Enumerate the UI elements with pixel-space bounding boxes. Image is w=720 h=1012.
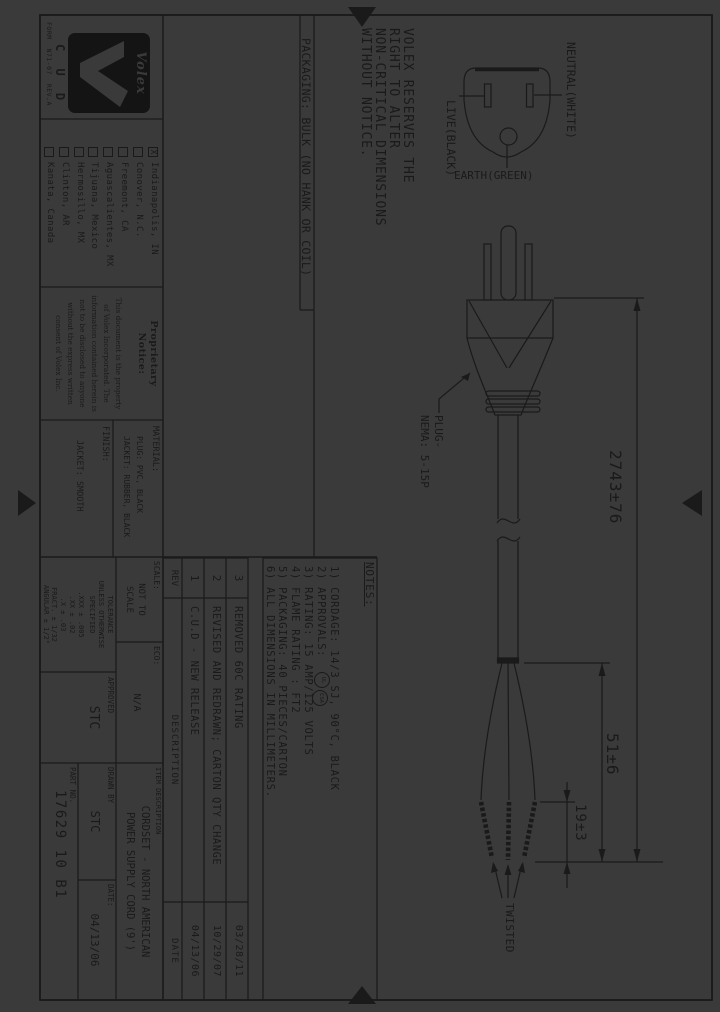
location-row: Freemont, CA xyxy=(115,121,130,286)
packaging-note: PACKAGING: BULK (NO HANK OR COIL) xyxy=(300,38,312,276)
tolerance-line2: UNLESS OTHERWISE xyxy=(96,557,104,672)
proprietary-line: consent of Volex Inc. xyxy=(54,290,62,417)
rev-table-rev-header: REV xyxy=(168,558,178,598)
location-label: Freemont, CA xyxy=(119,162,129,232)
proprietary-line: This document is the property xyxy=(114,290,122,417)
drawn-by-value: STC xyxy=(88,763,101,880)
tolerance-line3: SPECIFIED xyxy=(87,557,95,672)
earth-label: EARTH(GREEN) xyxy=(454,170,549,182)
location-row: Hermosillo, MX xyxy=(71,121,86,286)
location-row: Conover, N.C. xyxy=(130,121,145,286)
location-row: Aguascalientes, MX xyxy=(100,121,115,286)
approved-label: APPROVED xyxy=(106,677,114,713)
notes-title: NOTES: xyxy=(363,562,375,607)
note-item-2: 2) APPROVALS: xyxy=(315,566,326,657)
proprietary-line: without the express written xyxy=(66,290,74,417)
location-label: Conover, N.C. xyxy=(134,162,144,238)
logo-cud-text: C U D xyxy=(53,44,66,105)
proprietary-line: not to be disclosed to anyone xyxy=(78,290,86,417)
volex-logo-v-icon xyxy=(72,33,132,113)
form-number: FORM N71-07 REV.A xyxy=(45,22,52,106)
finish-value: JACKET: SMOOTH xyxy=(74,440,83,512)
date-value: 04/13/06 xyxy=(88,880,100,1000)
rev-description: C.U.D - NEW RELEASE xyxy=(188,606,199,736)
checkbox-icon xyxy=(44,147,54,157)
material-jacket-value: JACKET: RUBBER, BLACK xyxy=(121,436,130,537)
location-label: Kanata, Canada xyxy=(45,162,55,243)
rev-description: REMOVED 60C RATING xyxy=(232,606,243,729)
tolerance-val: .XX ± .02 xyxy=(67,557,75,672)
neutral-label: NEUTRAL(WHITE) xyxy=(565,42,577,139)
rev-description: REVISED AND REDRAWN; CARTON QTY CHANGE xyxy=(210,606,221,865)
proprietary-title-line2: Notice: xyxy=(136,289,146,418)
part-number: 17629 10 B1 xyxy=(52,790,67,899)
length-dimension: 2743±76 xyxy=(607,450,624,524)
part-no-label: PART NO. xyxy=(68,767,76,803)
location-label: Indianapolis, IN xyxy=(149,162,159,255)
proprietary-line: information contained herein is xyxy=(90,290,98,417)
proprietary-title-line1: Proprietary xyxy=(148,289,158,418)
tolerance-val: .X ± .03 xyxy=(58,557,66,672)
proprietary-line: of Volex Incorporated. The xyxy=(102,290,110,417)
checkbox-icon xyxy=(118,147,128,157)
volex-logo-wordmark: Volex xyxy=(133,33,148,113)
rev-date: 03/28/11 xyxy=(232,902,243,1000)
csa-approval-icon: CSA xyxy=(312,690,328,706)
location-row: XIndianapolis, IN xyxy=(145,121,160,286)
note-item-5: 5) PACKAGING: 40 PIECES/CARTON xyxy=(276,566,287,777)
checkbox-icon xyxy=(133,147,143,157)
item-description-label: ITEM DESCRIPTION xyxy=(153,767,161,834)
checkbox-icon xyxy=(88,147,98,157)
item-description-line1: CORDSET - NORTH AMERICAN xyxy=(139,763,150,1000)
location-label: Clinton, AR xyxy=(60,162,70,226)
drawn-by-label: DRAWN BY xyxy=(106,767,114,803)
plug-type-line2: NEMA: 5-15P xyxy=(418,415,430,488)
rev-table-date-header: DATE xyxy=(168,902,178,1000)
plug-type-line1: PLUG- xyxy=(432,415,444,448)
checkbox-icon xyxy=(103,147,113,157)
checkbox-icon xyxy=(59,147,69,157)
rev-date: 04/13/06 xyxy=(188,902,199,1000)
location-checklist: XIndianapolis, IN Conover, N.C. Freemont… xyxy=(41,121,160,286)
tolerance-val: .XXX ± .005 xyxy=(76,557,84,672)
material-label: MATERIAL: xyxy=(150,426,159,472)
drawing-sheet: Volex C U D FORM N71-07 REV.A XIndianapo… xyxy=(0,0,720,1012)
reserves-line4: WITHOUT NOTICE. xyxy=(358,28,372,157)
twisted-label: TWISTED xyxy=(503,903,515,953)
item-description-line2: POWER SUPPLY CORD (9') xyxy=(124,763,135,1000)
note-item-3: 3) RATING: 15 AMP/125 VOLTS xyxy=(302,566,313,756)
note-item-6: 6) ALL DIMENSIONS IN MILLIMETERS. xyxy=(264,566,275,798)
rev-number: 1 xyxy=(188,558,200,598)
volex-logo: Volex xyxy=(68,33,150,113)
finish-label: FINISH: xyxy=(100,426,109,462)
location-label: Aguascalientes, MX xyxy=(104,162,114,267)
reserves-line3: NON-CRITICAL DIMENSIONS xyxy=(372,28,386,226)
strip-dimension: 51±6 xyxy=(604,733,621,776)
scale-value-line2: SCALE xyxy=(123,557,133,642)
location-label: Tijuana, Mexico xyxy=(89,162,99,249)
note-item-4: 4) FLAME RATING : FT2 xyxy=(289,566,300,713)
reserves-line2: RIGHT TO ALTER xyxy=(386,28,400,149)
ul-approval-icon: UL xyxy=(314,672,330,688)
rev-date: 10/29/07 xyxy=(210,902,221,1000)
eco-label: ECO: xyxy=(151,646,160,665)
tolerance-val: ANGULAR ± 1/2° xyxy=(41,557,49,672)
rev-number: 3 xyxy=(232,558,244,598)
eco-value: N/A xyxy=(130,642,141,763)
location-label: Hermosillo, MX xyxy=(75,162,85,243)
tolerance-line1: TOLERANCE xyxy=(105,557,113,672)
scale-label: SCALE: xyxy=(151,561,160,590)
date-label: DATE: xyxy=(106,884,114,907)
rev-number: 2 xyxy=(210,558,222,598)
material-plug-value: PLUG: PVC, BLACK xyxy=(134,436,143,513)
checkbox-checked-icon: X xyxy=(148,147,158,157)
location-row: Kanata, Canada xyxy=(41,121,56,286)
reserves-line1: VOLEX RESERVES THE xyxy=(400,28,414,183)
location-row: Tijuana, Mexico xyxy=(86,121,101,286)
location-row: Clinton, AR xyxy=(56,121,71,286)
tolerance-val: FRACT. ± 1/32 xyxy=(49,557,57,672)
checkbox-icon xyxy=(74,147,84,157)
approved-value: STC xyxy=(86,672,100,763)
rotated-drawing-page: Volex C U D FORM N71-07 REV.A XIndianapo… xyxy=(0,0,720,1012)
live-label: LIVE(BLACK) xyxy=(445,100,457,176)
rev-table-desc-header: DESCRIPTION xyxy=(168,598,178,902)
scale-value-line1: NOT TO xyxy=(135,557,145,642)
twist-dimension: 19±3 xyxy=(572,804,587,842)
